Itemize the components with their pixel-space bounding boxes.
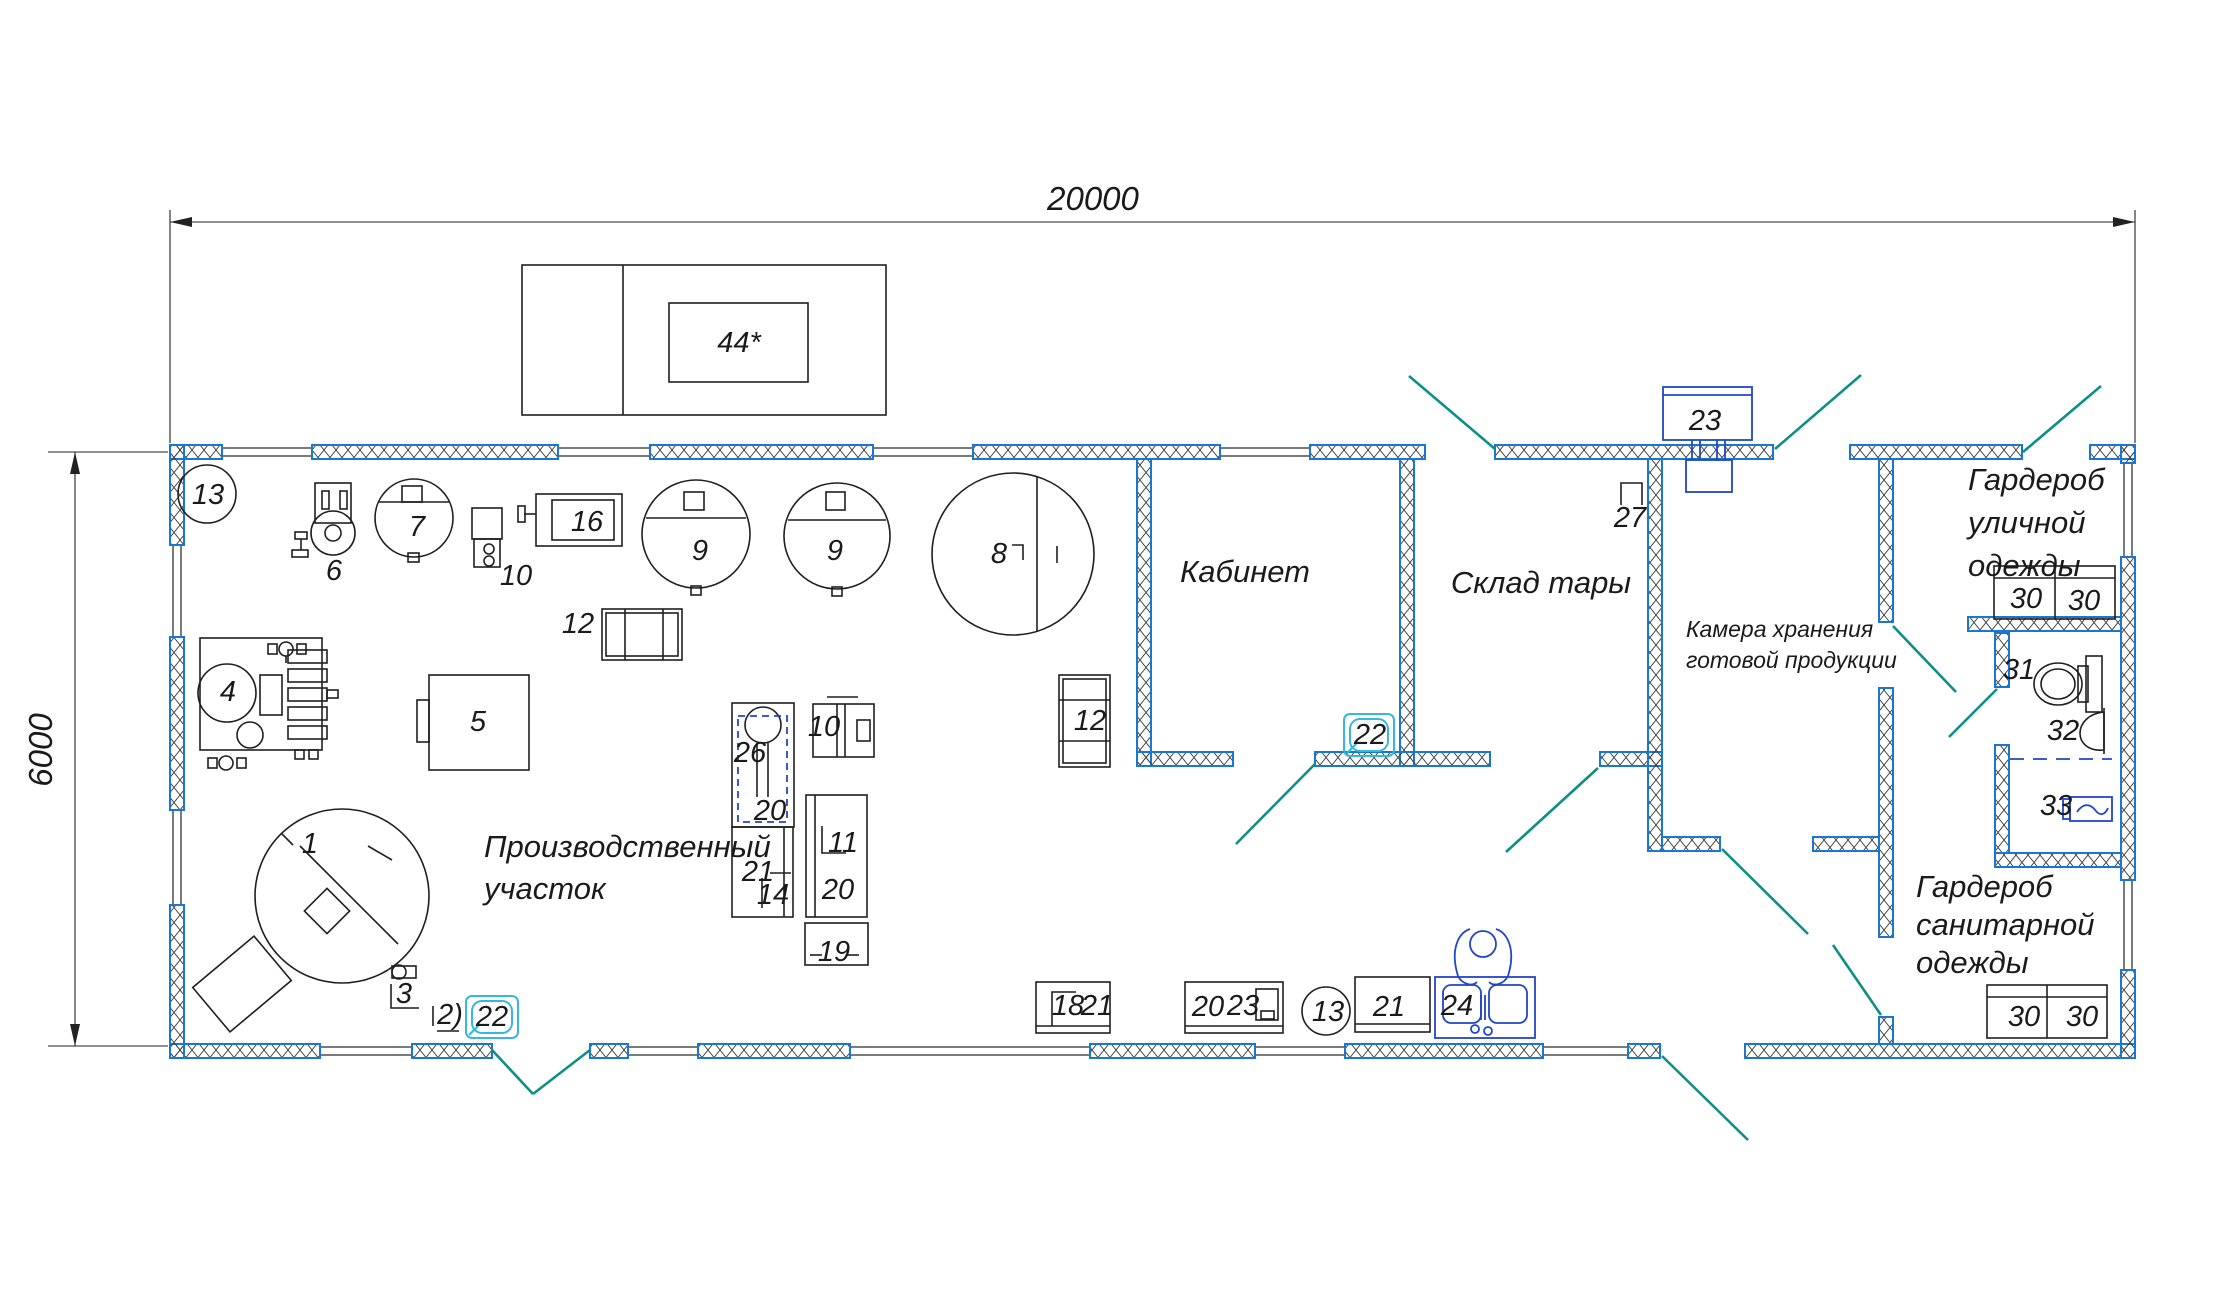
equipment-marker-22: 22: [475, 1001, 508, 1033]
condenser-unit-23: [1663, 387, 1752, 492]
equipment-marker-8: 8: [991, 538, 1007, 570]
equipment-marker-6: 6: [326, 555, 343, 587]
equipment-marker-10: 10: [500, 560, 532, 592]
room-label-street-wardrobe-line2: уличной: [1966, 505, 2085, 540]
room-label-production-line1: Производственный: [484, 829, 771, 864]
equipment-marker-10: 10: [808, 711, 840, 743]
equipment-marker-1: 1: [302, 828, 318, 860]
pallet-symbol: [193, 936, 292, 1032]
equipment-marker-23: 23: [1688, 405, 1721, 437]
equipment-marker-14: 14: [757, 879, 789, 911]
equipment-marker-30: 30: [2008, 1001, 2040, 1033]
roof-unit-label: 44*: [717, 327, 762, 359]
equipment-marker-30: 30: [2066, 1001, 2098, 1033]
equipment-marker-31: 31: [2003, 654, 2035, 686]
equipment-marker-24: 24: [1440, 990, 1473, 1022]
equipment-marker-13: 13: [192, 479, 224, 511]
equipment-marker-3: 3: [396, 978, 412, 1010]
room-label-chamber-line1: Камера хранения: [1686, 616, 1873, 642]
tank-symbol-8: [932, 473, 1094, 635]
equipment-marker-33: 33: [2040, 790, 2072, 822]
equipment-marker-5: 5: [470, 706, 487, 738]
toilet-symbol-31: [2034, 656, 2102, 712]
equipment-marker-26: 26: [733, 737, 767, 769]
equipment-marker-32: 32: [2047, 715, 2079, 747]
equipment-marker-9: 9: [827, 535, 843, 567]
equipment-marker-18: 18: [1052, 990, 1084, 1022]
equipment-marker-4: 4: [220, 676, 236, 708]
unit-symbol-10-top: [472, 508, 502, 567]
equipment-marker-20: 20: [1191, 991, 1224, 1023]
equipment-marker-7: 7: [409, 511, 427, 543]
unit-symbol-12-horizontal: [602, 609, 682, 660]
pump-symbol-6: [292, 483, 355, 557]
room-label-street-wardrobe-line1: Гардероб: [1968, 462, 2106, 497]
equipment-marker-9: 9: [692, 535, 708, 567]
walls: [170, 445, 2135, 1058]
equipment-marker-23: 23: [1226, 990, 1259, 1022]
washbasin-symbol-32: [2080, 708, 2104, 754]
equipment-marker-27: 27: [1613, 502, 1648, 534]
roof-unit-outline: [522, 265, 886, 415]
room-label-street-wardrobe-line3: одежды: [1968, 548, 2081, 583]
equipment-marker-30: 30: [2010, 583, 2042, 615]
dimension-width-label: 20000: [1046, 180, 1139, 217]
room-label-production-line2: участок: [482, 871, 607, 906]
room-label-office: Кабинет: [1180, 554, 1310, 589]
equipment-marker-21: 21: [1372, 991, 1405, 1023]
equipment-marker-13: 13: [1312, 996, 1344, 1028]
dimension-height-label: 6000: [22, 713, 59, 787]
equipment-marker-2: 2): [436, 999, 463, 1031]
equipment-marker-16: 16: [571, 506, 604, 538]
equipment-marker-22: 22: [1353, 719, 1386, 751]
room-label-warehouse: Склад тары: [1451, 565, 1631, 600]
equipment-marker-11: 11: [828, 827, 858, 859]
vat-symbol-1: [255, 809, 429, 983]
equipment-marker-20: 20: [821, 874, 854, 906]
equipment-marker-20: 20: [753, 795, 786, 827]
room-label-sanitary-wardrobe-line3: одежды: [1916, 945, 2029, 980]
room-label-sanitary-wardrobe-line2: санитарной: [1916, 907, 2095, 942]
room-label-chamber-line2: готовой продукции: [1686, 647, 1897, 673]
floor-plan-canvas: 20000 6000 44*: [0, 0, 2227, 1308]
equipment-marker-21: 21: [1080, 990, 1113, 1022]
equipment-marker-12: 12: [562, 608, 594, 640]
equipment-marker-19: 19: [818, 936, 850, 968]
equipment-marker-12: 12: [1074, 705, 1106, 737]
equipment-marker-30: 30: [2068, 585, 2100, 617]
room-label-sanitary-wardrobe-line1: Гардероб: [1916, 869, 2054, 904]
